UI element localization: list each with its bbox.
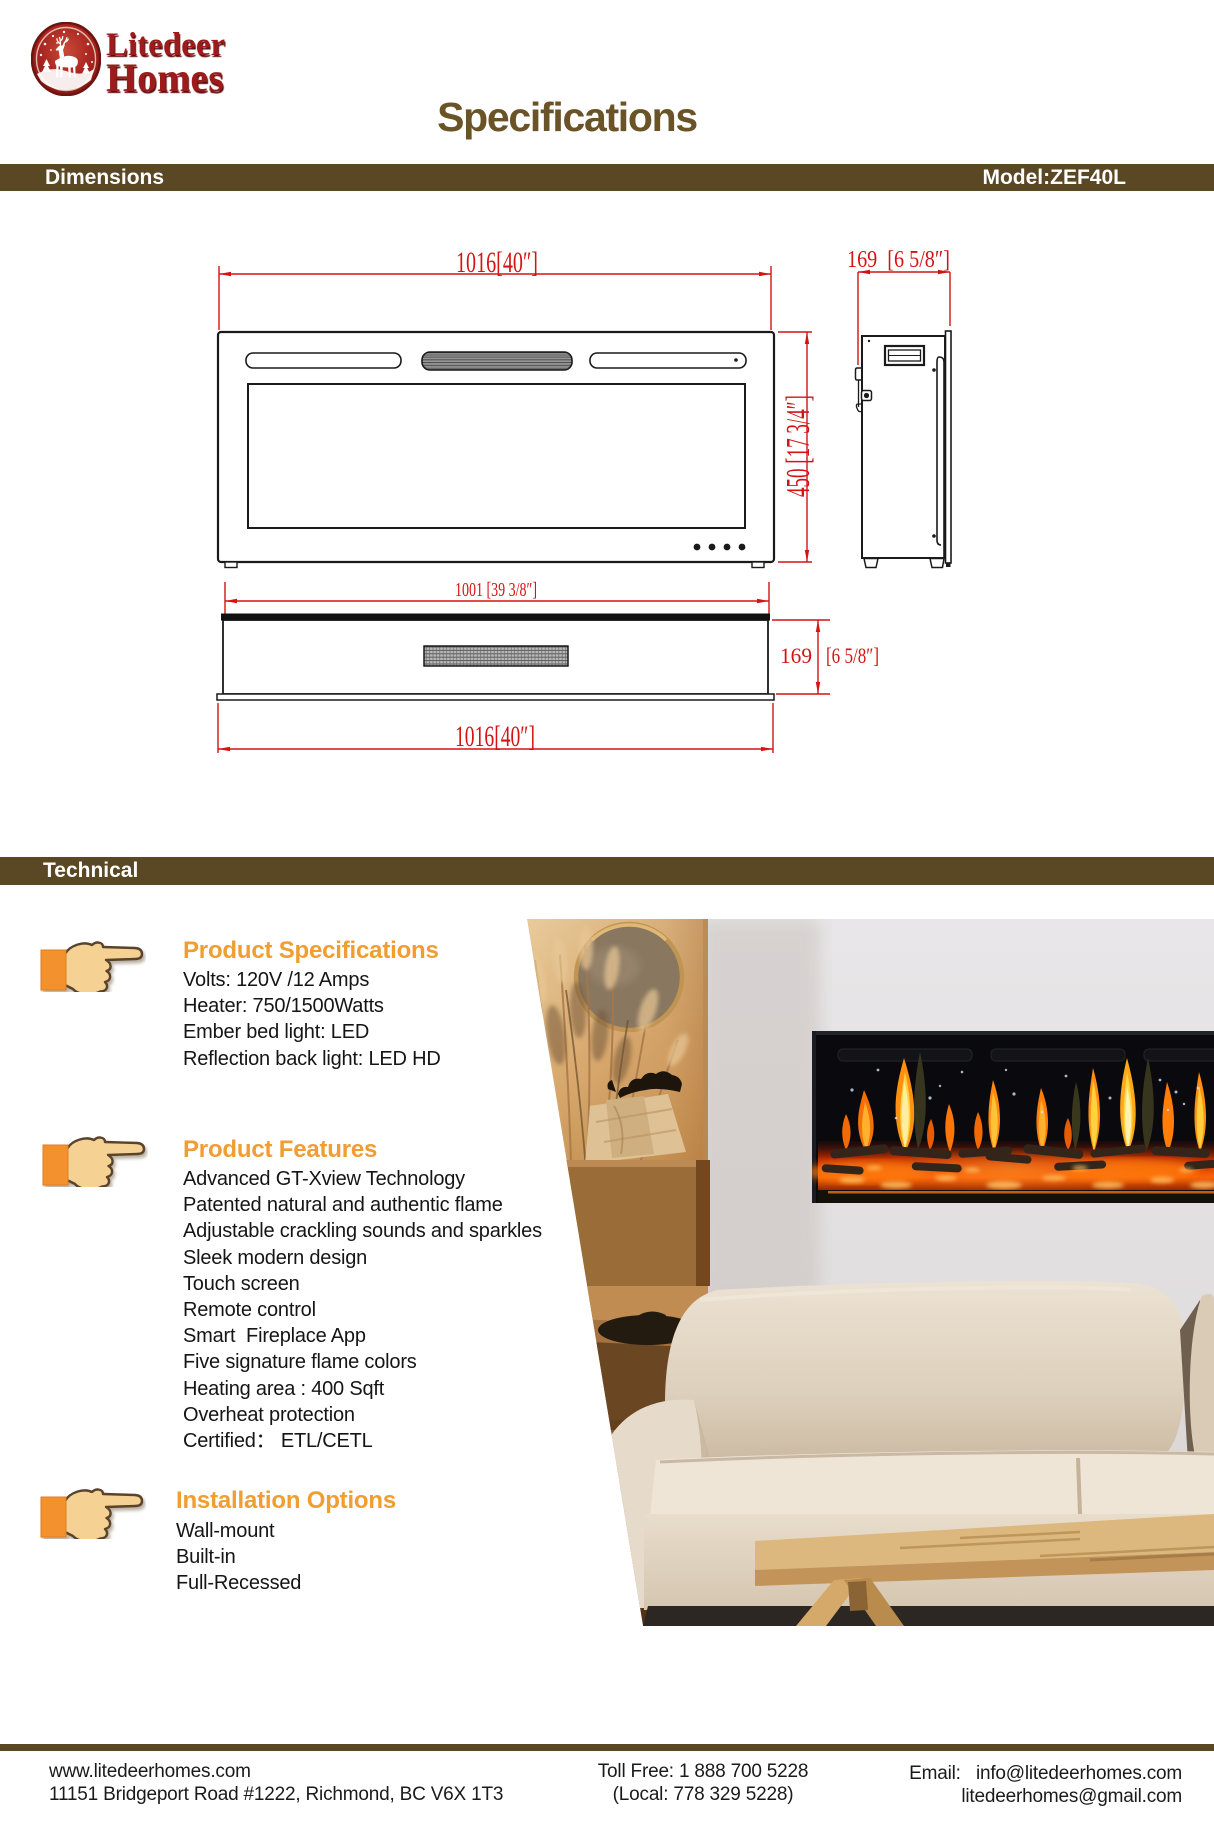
svg-text:169: 169 [780,643,812,668]
svg-text:450 [17 3/4″]: 450 [17 3/4″] [780,395,817,497]
svg-text:1016[40″]: 1016[40″] [455,720,535,753]
svg-text:1016[40″]: 1016[40″] [456,246,538,279]
svg-text:169 [6 5/8″]: 169 [6 5/8″] [847,247,950,273]
svg-text:[6 5/8″]: [6 5/8″] [826,643,879,668]
svg-text:1001 [39 3/8″]: 1001 [39 3/8″] [455,579,537,601]
